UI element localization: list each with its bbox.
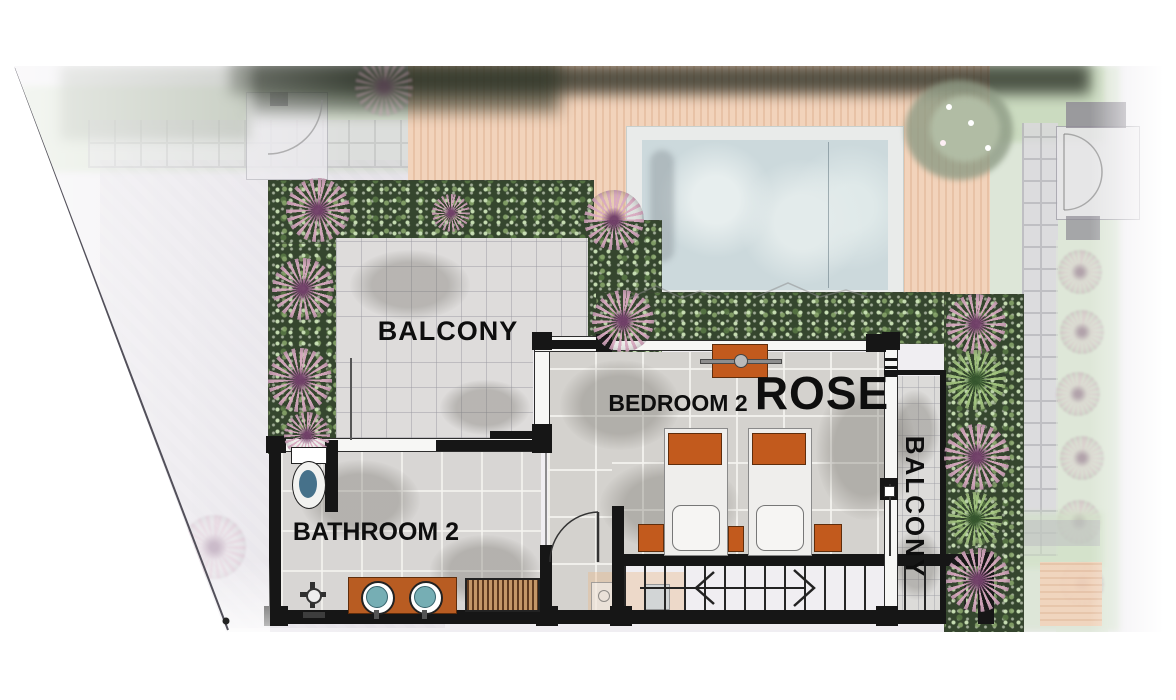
bed-1-pillow <box>672 505 720 551</box>
site-plan: BALCONY BEDROOM 2 ROSE BALCONY BATHROOM … <box>0 0 1176 700</box>
bed-1-blanket <box>668 433 722 465</box>
blossom <box>946 104 952 110</box>
wall-bathroom-east <box>540 545 552 615</box>
label-suite-name: ROSE <box>752 366 892 420</box>
bed-2 <box>748 428 812 556</box>
wall-column <box>882 332 900 350</box>
floor-stain <box>350 250 470 320</box>
console-knob <box>734 354 748 368</box>
floor-stain <box>440 380 530 435</box>
wall-column <box>532 332 552 350</box>
nightstand <box>814 524 842 552</box>
label-balcony-side: BALCONY <box>900 422 930 592</box>
bed-1 <box>664 428 728 556</box>
sink-basin <box>366 586 388 608</box>
door-leaf-line <box>350 358 352 440</box>
swimming-pool <box>642 140 888 290</box>
bottomleft-fade <box>0 560 270 640</box>
wall-bathroom-west <box>269 438 281 624</box>
toilet-bowl-water <box>299 470 317 498</box>
door-handle <box>884 486 895 497</box>
shower-valve <box>306 588 322 604</box>
bed-2-blanket <box>752 433 806 465</box>
shrub <box>948 492 1002 546</box>
wardrobe-icon <box>465 578 540 612</box>
blossom <box>940 140 946 146</box>
wall-column <box>532 424 552 442</box>
label-bedroom2: BEDROOM 2 <box>598 390 758 417</box>
wall-line <box>545 440 547 545</box>
window-mark <box>885 358 897 361</box>
flower <box>584 190 644 250</box>
shower-bench <box>303 612 325 618</box>
appliance-dial <box>598 590 610 602</box>
wall-segment <box>548 340 596 349</box>
flower <box>944 424 1010 490</box>
flower <box>592 290 654 352</box>
wall-faded-bottomright <box>1012 520 1100 546</box>
faucet <box>422 610 427 619</box>
label-bathroom2: BATHROOM 2 <box>286 518 466 547</box>
pool-lane-line <box>828 142 829 288</box>
flower <box>946 548 1010 612</box>
tree-topright-inner <box>930 96 1000 162</box>
blossom <box>968 120 974 126</box>
blossom <box>985 145 991 151</box>
sink-basin <box>414 586 436 608</box>
flower <box>272 258 334 320</box>
flower <box>286 178 350 242</box>
flower <box>946 294 1006 354</box>
flower <box>268 348 332 412</box>
nightstand <box>638 524 664 552</box>
nightstand <box>728 526 744 552</box>
wall-column <box>610 606 632 626</box>
faucet <box>374 610 379 619</box>
stepping-stone-path-right <box>1022 123 1058 556</box>
floor-plan-canvas: BALCONY BEDROOM 2 ROSE BALCONY BATHROOM … <box>0 0 1176 700</box>
flower <box>432 194 470 232</box>
palm-faded <box>355 58 413 116</box>
wall-column <box>876 606 898 626</box>
sliding-door <box>490 431 538 439</box>
shrub <box>946 350 1006 410</box>
label-balcony-upper: BALCONY <box>368 316 528 347</box>
right-fade <box>1090 66 1176 632</box>
bed-2-pillow <box>756 505 804 551</box>
wall-column <box>266 436 286 453</box>
